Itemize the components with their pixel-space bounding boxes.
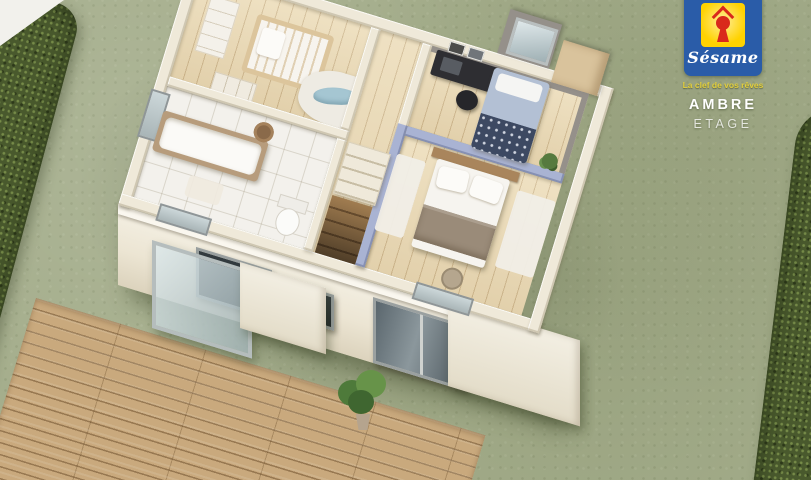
- potted-plant: [334, 366, 390, 438]
- plant-foliage: [348, 390, 374, 414]
- nursery-closet: [195, 0, 241, 59]
- keyhole-stem-icon: [717, 27, 729, 42]
- floor-label: ETAGE: [684, 117, 762, 131]
- model-name-label: AMBRE: [684, 97, 762, 113]
- laptop: [440, 57, 463, 76]
- plant-pot: [354, 414, 372, 430]
- brand-name-label: Sésame: [687, 48, 758, 67]
- pillow: [435, 165, 470, 193]
- keyhole-house-icon: [701, 3, 745, 47]
- render-canvas: MAISONS Sésame La clef de vos rêves AMBR…: [0, 0, 811, 480]
- pillow: [468, 174, 505, 205]
- brand-logo: MAISONS Sésame: [684, 0, 762, 76]
- brand-block: MAISONS Sésame La clef de vos rêves AMBR…: [684, 0, 762, 131]
- brand-tagline: La clef de vos rêves: [674, 80, 772, 90]
- brand-top-label: MAISONS: [692, 0, 754, 1]
- crib-pillow: [255, 27, 286, 61]
